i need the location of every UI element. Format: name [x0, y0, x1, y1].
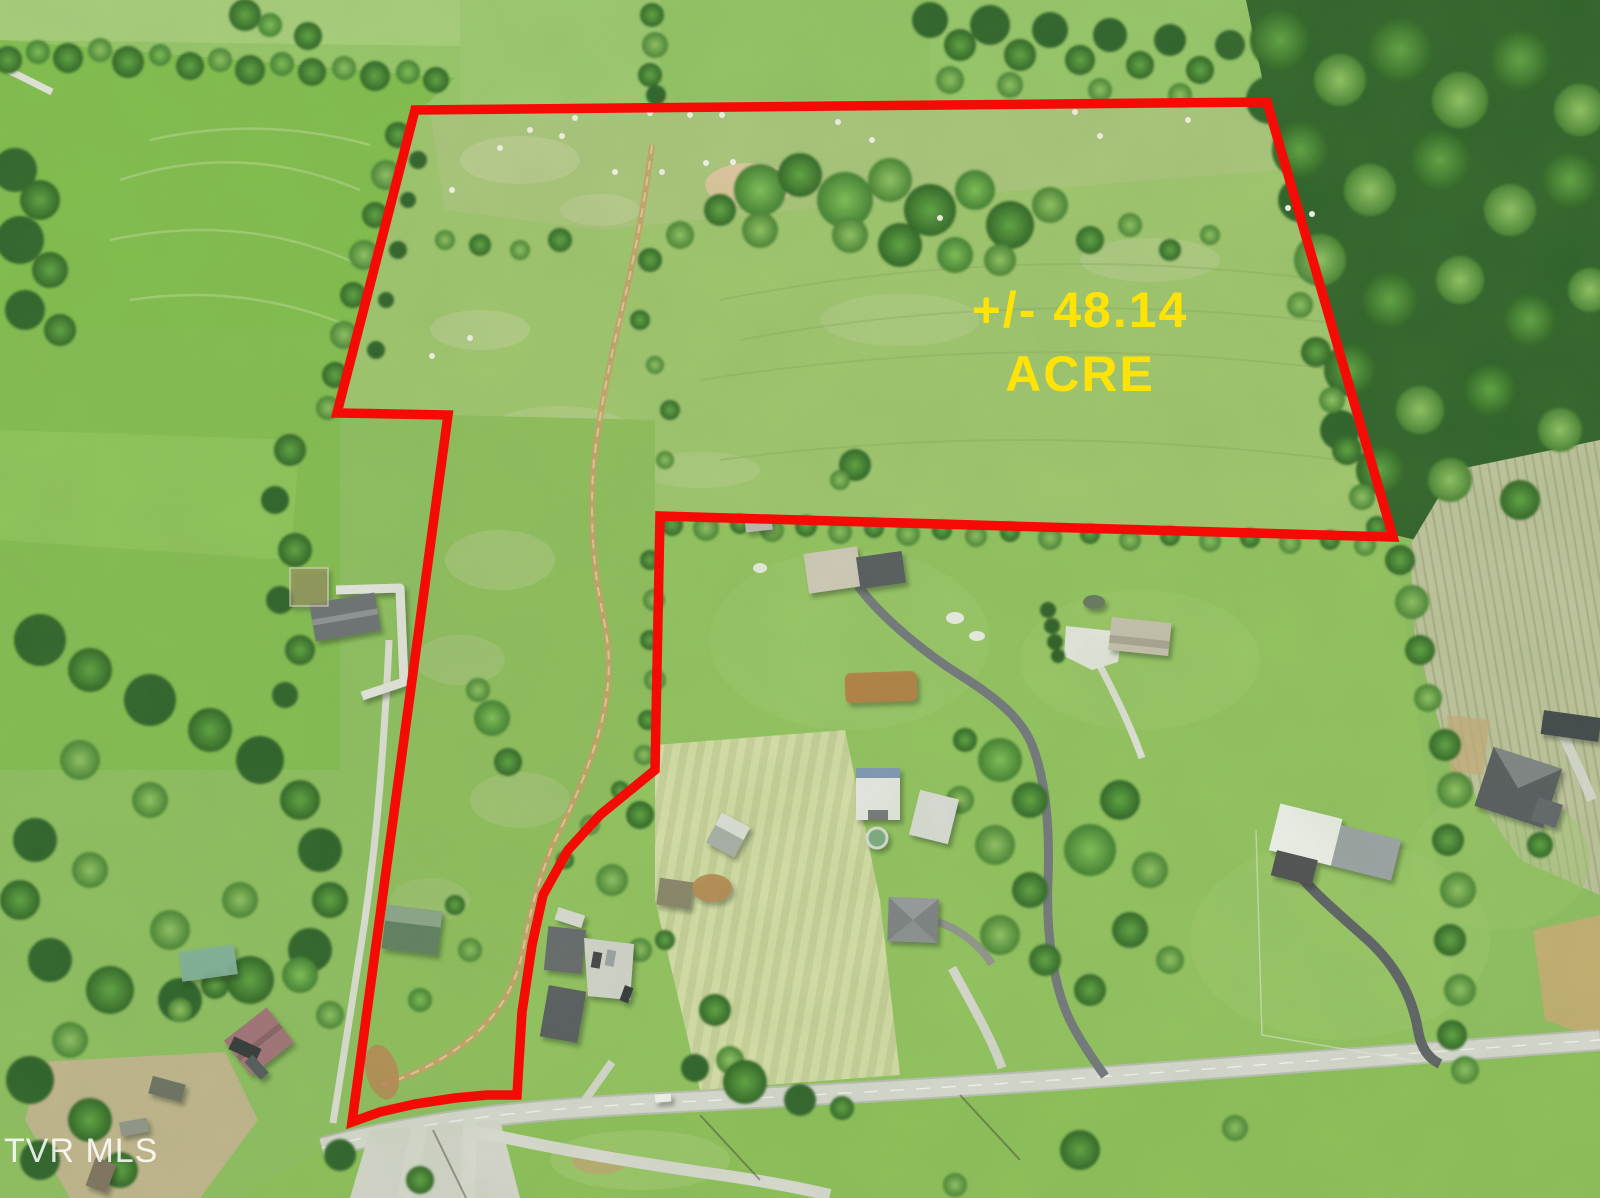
acreage-label-line2: ACRE — [1005, 346, 1155, 402]
acreage-label-line1: +/- 48.14 — [972, 282, 1189, 338]
aerial-photo-canvas: +/- 48.14 ACRE TVR MLS — [0, 0, 1600, 1198]
aerial-listing-photo: +/- 48.14 ACRE TVR MLS — [0, 0, 1600, 1198]
watermark: TVR MLS — [4, 1132, 158, 1170]
photo-grain — [0, 0, 1600, 1198]
